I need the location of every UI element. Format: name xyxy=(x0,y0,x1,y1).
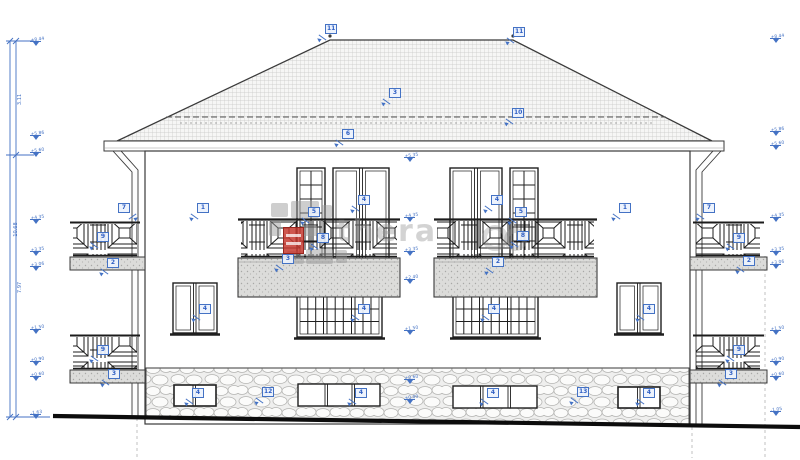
basement-stone-wall xyxy=(146,368,689,425)
balcony-side-left-lower xyxy=(70,336,145,384)
walls xyxy=(145,151,690,425)
ridge-vent-right xyxy=(511,34,514,37)
bsmt-window-wide-left xyxy=(298,384,380,406)
balcony-front-left xyxy=(238,220,400,298)
gf-window-narrow-left xyxy=(170,283,220,335)
balcony-side-right-lower xyxy=(690,336,767,384)
bsmt-window-wide-right xyxy=(453,386,537,408)
roof-surface xyxy=(117,40,712,141)
balcony-side-right-upper xyxy=(690,223,767,271)
ridge-vent-left xyxy=(328,34,331,37)
elevation-sheet: thera +8.44+5.86+5.60+4.35+3.35+3.06+1.5… xyxy=(0,0,800,460)
gf-window-narrow-right xyxy=(614,283,664,335)
eaves-gutter xyxy=(104,141,724,151)
balcony-front-right xyxy=(434,220,597,298)
bsmt-window-small-right xyxy=(618,387,660,408)
bsmt-window-small-left xyxy=(174,385,216,406)
balcony-side-left-upper xyxy=(70,223,145,271)
elevation-drawing xyxy=(0,0,800,460)
roof xyxy=(104,34,724,151)
height-dimension-lines xyxy=(6,38,50,420)
